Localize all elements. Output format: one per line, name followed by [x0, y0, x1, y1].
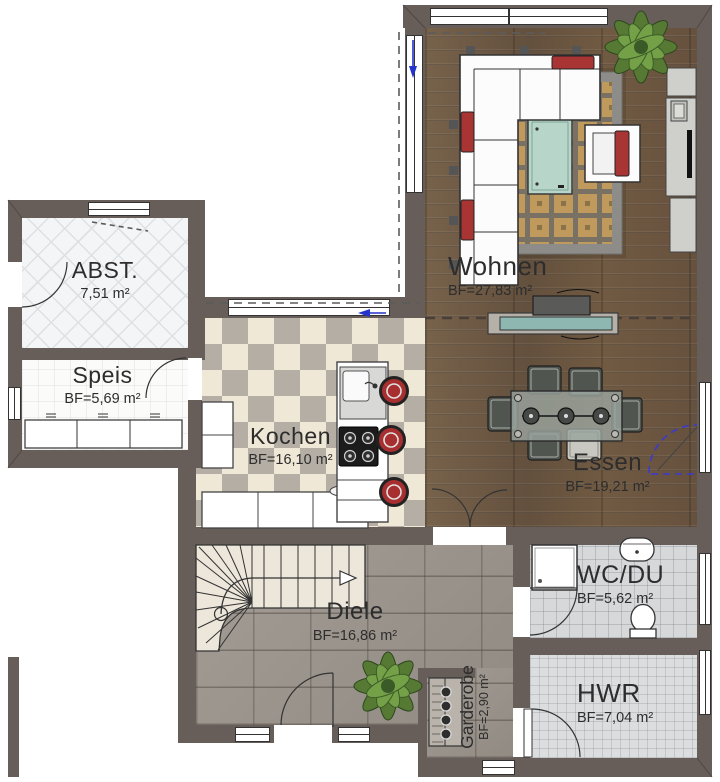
- wall-wc-hwr-divider: [513, 638, 697, 655]
- door-opening-entrance: [274, 725, 332, 743]
- wall-abst-right: [188, 200, 205, 360]
- room-label-essen: Essen BF=19,21 m²: [545, 450, 670, 495]
- wall-abst-speis-divider: [8, 348, 200, 360]
- wall-diele-left: [178, 468, 196, 743]
- room-name-hwr: HWR: [577, 679, 697, 708]
- door-opening-wcdu: [513, 587, 530, 637]
- window-abst-top: [88, 202, 150, 216]
- room-label-wcdu: WC/DU BF=5,62 m²: [577, 561, 697, 607]
- room-area-garderobe: BF=2,90 m²: [477, 632, 491, 782]
- room-name-essen: Essen: [545, 450, 670, 477]
- door-opening-speis: [188, 358, 202, 400]
- room-area-wohnen: BF=27,83 m²: [448, 283, 608, 299]
- room-label-diele: Diele BF=16,86 m²: [296, 599, 414, 644]
- door-opening-essen-double: [433, 527, 506, 545]
- room-area-hwr: BF=7,04 m²: [577, 710, 697, 726]
- room-name-speis: Speis: [50, 363, 155, 389]
- room-label-hwr: HWR BF=7,04 m²: [577, 679, 697, 726]
- window-wcdu-right: [699, 553, 711, 625]
- terrace-door-essen: [699, 382, 711, 473]
- room-name-garderobe: Garderobe: [457, 632, 477, 782]
- window-diele-bottom-2: [338, 727, 370, 742]
- room-area-wcdu: BF=5,62 m²: [577, 591, 697, 607]
- room-name-abst: ABST.: [55, 258, 155, 284]
- door-opening-hwr: [513, 708, 530, 757]
- wall-freestanding-garden: [8, 657, 19, 777]
- window-wohnen-top-2: [509, 8, 608, 25]
- window-kochen-top: [228, 299, 390, 316]
- room-area-diele: BF=16,86 m²: [296, 628, 414, 644]
- wall-speis-bottom: [8, 450, 205, 468]
- room-label-kochen: Kochen BF=16,10 m²: [228, 424, 353, 468]
- room-label-speis: Speis BF=5,69 m²: [50, 363, 155, 407]
- room-name-kochen: Kochen: [228, 424, 353, 450]
- room-name-wcdu: WC/DU: [577, 561, 697, 589]
- room-area-speis: BF=5,69 m²: [50, 391, 155, 407]
- room-area-essen: BF=19,21 m²: [545, 479, 670, 495]
- window-hwr-right: [699, 650, 711, 715]
- floor-plan: ABST. 7,51 m² Speis BF=5,69 m² Kochen BF…: [0, 0, 720, 782]
- room-label-abst: ABST. 7,51 m²: [55, 258, 155, 302]
- room-area-abst: 7,51 m²: [55, 286, 155, 302]
- room-name-wohnen: Wohnen: [448, 252, 608, 281]
- wall-garderobe-left: [418, 668, 427, 758]
- window-wohnen-left: [406, 35, 423, 193]
- room-label-garderobe: Garderobe BF=2,90 m²: [457, 632, 497, 782]
- window-wohnen-top-1: [430, 8, 509, 25]
- room-label-wohnen: Wohnen BF=27,83 m²: [448, 252, 608, 299]
- window-speis-left: [8, 387, 21, 420]
- window-diele-bottom-1: [235, 727, 270, 742]
- room-area-kochen: BF=16,10 m²: [228, 452, 353, 468]
- room-name-diele: Diele: [296, 599, 414, 626]
- wall-left-exterior: [8, 200, 22, 468]
- door-opening-abst: [8, 262, 22, 307]
